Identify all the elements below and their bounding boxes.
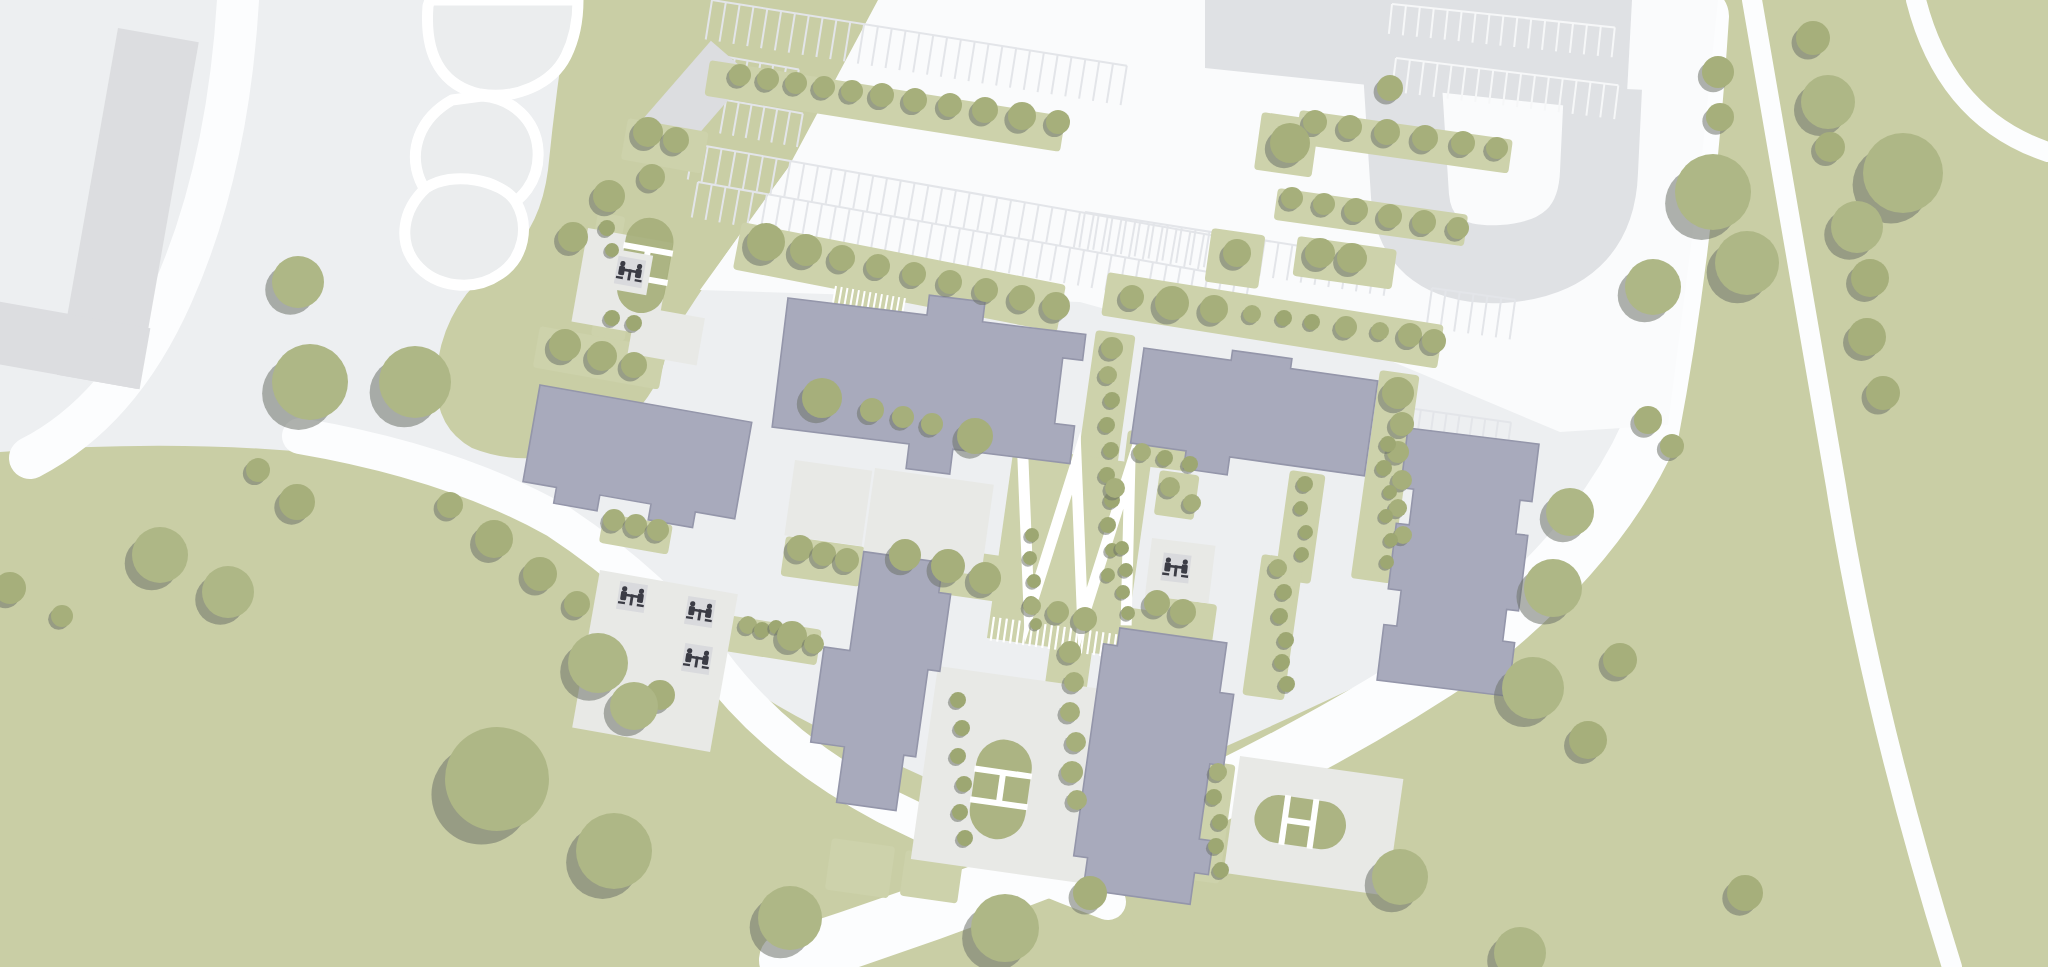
tree-icon bbox=[132, 527, 188, 583]
tree-icon bbox=[1392, 470, 1412, 490]
tree-icon bbox=[1294, 501, 1308, 515]
tree-icon bbox=[568, 633, 628, 693]
tree-icon bbox=[605, 243, 619, 257]
tree-icon bbox=[1104, 392, 1120, 408]
tree-icon bbox=[1008, 102, 1036, 130]
tree-icon bbox=[1304, 314, 1320, 330]
tree-icon bbox=[971, 894, 1039, 962]
planter-bed bbox=[825, 838, 896, 898]
tree-icon bbox=[835, 548, 859, 572]
tree-icon bbox=[1155, 286, 1189, 320]
tree-icon bbox=[802, 378, 842, 418]
tree-icon bbox=[1524, 559, 1582, 617]
tree-icon bbox=[1374, 119, 1400, 145]
tree-icon bbox=[974, 278, 998, 302]
tree-icon bbox=[663, 127, 689, 153]
tree-icon bbox=[956, 776, 972, 792]
tree-icon bbox=[1313, 193, 1335, 215]
tree-icon bbox=[1603, 643, 1637, 677]
tree-icon bbox=[1486, 137, 1508, 159]
tree-icon bbox=[903, 88, 927, 112]
tree-icon bbox=[804, 634, 824, 654]
tree-icon bbox=[969, 562, 1001, 594]
plaza-surface bbox=[784, 460, 872, 546]
tree-icon bbox=[1546, 488, 1594, 536]
tree-icon bbox=[1377, 75, 1403, 101]
tree-icon bbox=[757, 68, 779, 90]
tree-icon bbox=[1270, 123, 1310, 163]
tree-icon bbox=[1170, 599, 1196, 625]
tree-icon bbox=[647, 519, 669, 541]
tree-icon bbox=[610, 682, 658, 730]
tree-icon bbox=[1183, 494, 1201, 512]
tree-icon bbox=[950, 692, 966, 708]
tree-icon bbox=[51, 605, 73, 627]
tree-icon bbox=[1634, 406, 1662, 434]
tree-icon bbox=[1380, 436, 1396, 452]
tree-icon bbox=[1060, 702, 1080, 722]
tree-icon bbox=[1213, 862, 1229, 878]
tree-icon bbox=[1274, 654, 1290, 670]
tree-icon bbox=[1866, 376, 1900, 410]
tree-icon bbox=[1073, 876, 1107, 910]
tree-icon bbox=[931, 549, 965, 583]
tree-icon bbox=[1099, 417, 1115, 433]
tree-icon bbox=[785, 72, 807, 94]
tree-icon bbox=[1120, 285, 1144, 309]
tree-icon bbox=[1272, 608, 1288, 624]
tree-icon bbox=[379, 346, 451, 418]
tree-icon bbox=[1382, 377, 1414, 409]
tree-icon bbox=[1160, 477, 1180, 497]
tree-icon bbox=[1305, 238, 1335, 268]
tree-icon bbox=[639, 164, 665, 190]
tree-icon bbox=[1100, 517, 1116, 533]
tree-icon bbox=[445, 727, 549, 831]
tree-icon bbox=[1295, 547, 1309, 561]
tree-icon bbox=[1378, 204, 1402, 228]
tree-icon bbox=[1383, 485, 1397, 499]
tree-icon bbox=[1030, 618, 1042, 630]
tree-icon bbox=[549, 329, 581, 361]
tree-icon bbox=[1384, 533, 1398, 547]
tree-icon bbox=[950, 748, 966, 764]
picnic-table bbox=[1154, 546, 1199, 591]
tree-icon bbox=[1182, 456, 1198, 472]
tree-icon bbox=[829, 245, 855, 271]
tree-icon bbox=[866, 254, 890, 278]
tree-icon bbox=[1103, 442, 1119, 458]
tree-icon bbox=[1276, 584, 1292, 600]
tree-icon bbox=[272, 344, 348, 420]
tree-icon bbox=[1269, 559, 1287, 577]
tree-icon bbox=[938, 270, 962, 294]
person-icon bbox=[1181, 564, 1188, 574]
tree-icon bbox=[1299, 525, 1313, 539]
tree-icon bbox=[921, 413, 943, 435]
tree-icon bbox=[790, 234, 822, 266]
tree-icon bbox=[889, 539, 921, 571]
tree-icon bbox=[1023, 551, 1037, 565]
tree-icon bbox=[1278, 632, 1294, 648]
tree-icon bbox=[1101, 337, 1123, 359]
tree-icon bbox=[1042, 292, 1070, 320]
tree-icon bbox=[1706, 103, 1734, 131]
tree-icon bbox=[841, 80, 863, 102]
tree-icon bbox=[593, 180, 625, 212]
tree-icon bbox=[1157, 450, 1173, 466]
tree-icon bbox=[1121, 606, 1135, 620]
tree-icon bbox=[246, 458, 270, 482]
tree-icon bbox=[1675, 154, 1751, 230]
tree-icon bbox=[1376, 460, 1392, 476]
picnic-table bbox=[677, 589, 723, 635]
tree-icon bbox=[1025, 528, 1039, 542]
tree-icon bbox=[558, 222, 588, 252]
tree-icon bbox=[972, 97, 998, 123]
tree-icon bbox=[954, 720, 970, 736]
tree-icon bbox=[1796, 21, 1830, 55]
tree-icon bbox=[1337, 243, 1367, 273]
tree-icon bbox=[1447, 217, 1469, 239]
tree-icon bbox=[1569, 721, 1607, 759]
tree-icon bbox=[1727, 875, 1763, 911]
tree-icon bbox=[1105, 478, 1125, 498]
tree-icon bbox=[1371, 322, 1389, 340]
tree-icon bbox=[1380, 555, 1394, 569]
tree-icon bbox=[1009, 285, 1035, 311]
tree-icon bbox=[1344, 198, 1368, 222]
tree-icon bbox=[437, 492, 463, 518]
oval-divider bbox=[999, 773, 1003, 804]
tree-icon bbox=[1067, 790, 1087, 810]
tree-icon bbox=[1848, 318, 1886, 356]
tree-icon bbox=[1412, 125, 1438, 151]
tree-icon bbox=[1046, 110, 1070, 134]
tree-icon bbox=[1209, 763, 1227, 781]
tree-icon bbox=[1390, 412, 1414, 436]
tree-icon bbox=[1133, 443, 1151, 461]
pond-lobe-3 bbox=[405, 179, 524, 285]
tree-icon bbox=[1412, 210, 1436, 234]
tree-icon bbox=[1099, 366, 1117, 384]
tree-icon bbox=[1660, 434, 1684, 458]
tree-icon bbox=[1059, 641, 1081, 663]
tree-icon bbox=[202, 566, 254, 618]
tree-icon bbox=[952, 804, 968, 820]
tree-icon bbox=[1851, 259, 1889, 297]
tree-icon bbox=[1625, 259, 1681, 315]
tree-icon bbox=[1702, 56, 1734, 88]
tree-icon bbox=[1061, 761, 1083, 783]
tree-icon bbox=[1047, 601, 1069, 623]
tree-icon bbox=[1715, 231, 1779, 295]
tree-icon bbox=[758, 886, 822, 950]
site-plan bbox=[0, 0, 2048, 967]
tree-icon bbox=[1863, 133, 1943, 213]
tree-icon bbox=[1064, 672, 1084, 692]
tree-icon bbox=[1422, 329, 1446, 353]
oval-divider bbox=[1285, 820, 1313, 824]
tree-icon bbox=[1101, 568, 1115, 582]
tree-icon bbox=[1379, 509, 1393, 523]
tree-icon bbox=[603, 509, 625, 531]
tree-icon bbox=[1303, 110, 1327, 134]
tree-icon bbox=[1338, 115, 1362, 139]
tree-icon bbox=[587, 341, 617, 371]
tree-icon bbox=[523, 557, 557, 591]
tree-icon bbox=[813, 76, 835, 98]
tree-icon bbox=[1115, 541, 1129, 555]
tree-icon bbox=[604, 310, 620, 326]
tree-icon bbox=[1116, 585, 1130, 599]
tree-icon bbox=[729, 64, 751, 86]
tree-icon bbox=[1279, 676, 1295, 692]
picnic-table bbox=[609, 574, 655, 620]
tree-icon bbox=[1212, 814, 1228, 830]
tree-icon bbox=[860, 398, 884, 422]
tree-icon bbox=[1243, 305, 1261, 323]
planter-strip bbox=[825, 838, 896, 898]
tree-icon bbox=[576, 813, 652, 889]
tree-icon bbox=[938, 93, 962, 117]
tree-icon bbox=[957, 418, 993, 454]
tree-icon bbox=[599, 220, 615, 236]
tree-icon bbox=[1073, 607, 1097, 631]
tree-icon bbox=[1200, 295, 1228, 323]
tree-icon bbox=[1066, 732, 1086, 752]
tree-icon bbox=[1398, 323, 1422, 347]
tree-icon bbox=[1023, 597, 1041, 615]
tree-icon bbox=[1208, 838, 1224, 854]
tree-icon bbox=[1297, 476, 1313, 492]
tree-icon bbox=[902, 262, 926, 286]
tree-icon bbox=[272, 256, 324, 308]
tree-icon bbox=[1815, 132, 1845, 162]
tree-icon bbox=[1144, 590, 1170, 616]
tree-icon bbox=[1119, 563, 1133, 577]
tree-icon bbox=[1451, 131, 1475, 155]
courtyard-plaza bbox=[784, 460, 872, 546]
tree-icon bbox=[1276, 310, 1292, 326]
tree-icon bbox=[1027, 574, 1041, 588]
tree-icon bbox=[633, 117, 663, 147]
tree-icon bbox=[1223, 239, 1251, 267]
tree-icon bbox=[957, 830, 973, 846]
tree-icon bbox=[747, 223, 785, 261]
tree-icon bbox=[1801, 75, 1855, 129]
tree-icon bbox=[1831, 201, 1883, 253]
site-plan-page bbox=[0, 0, 2048, 967]
tree-icon bbox=[279, 484, 315, 520]
picnic-table bbox=[674, 636, 720, 682]
tree-icon bbox=[892, 406, 914, 428]
tree-icon bbox=[626, 315, 642, 331]
tree-icon bbox=[870, 83, 894, 107]
tree-icon bbox=[1281, 187, 1303, 209]
tree-icon bbox=[1335, 316, 1357, 338]
tree-icon bbox=[625, 514, 647, 536]
tree-icon bbox=[1372, 849, 1428, 905]
tree-icon bbox=[475, 520, 513, 558]
tree-icon bbox=[621, 352, 647, 378]
tree-icon bbox=[1206, 789, 1222, 805]
tree-icon bbox=[1502, 657, 1564, 719]
tree-icon bbox=[564, 591, 590, 617]
